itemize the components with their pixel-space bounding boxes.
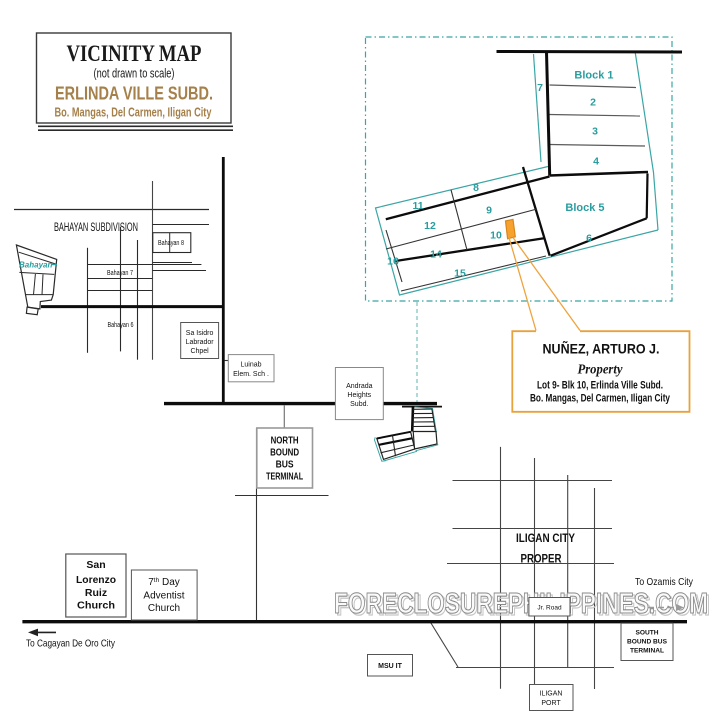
svg-text:Block 5: Block 5 bbox=[565, 202, 604, 214]
svg-text:Subd.: Subd. bbox=[350, 401, 368, 408]
svg-text:Chpel: Chpel bbox=[190, 348, 209, 355]
svg-text:Labrador: Labrador bbox=[186, 339, 215, 346]
svg-text:BAHAYAN SUBDIVISION: BAHAYAN SUBDIVISION bbox=[54, 222, 138, 234]
svg-text:Sa Isidro: Sa Isidro bbox=[186, 330, 214, 337]
svg-text:Bahayan 7: Bahayan 7 bbox=[107, 270, 133, 277]
svg-text:10: 10 bbox=[490, 230, 502, 242]
svg-text:Property: Property bbox=[578, 362, 624, 377]
svg-text:6: 6 bbox=[586, 233, 592, 245]
svg-text:Bahayan: Bahayan bbox=[19, 261, 52, 270]
svg-text:PROPER: PROPER bbox=[521, 554, 563, 566]
svg-text:Jr. Road: Jr. Road bbox=[537, 605, 562, 612]
svg-text:Block 1: Block 1 bbox=[574, 70, 613, 82]
svg-text:Bo. Mangas, Del Carmen, Iligan: Bo. Mangas, Del Carmen, Iligan City bbox=[55, 106, 212, 120]
svg-text:(not drawn to scale): (not drawn to scale) bbox=[94, 67, 175, 81]
svg-text:ERLINDA VILLE SUBD.: ERLINDA VILLE SUBD. bbox=[55, 84, 213, 104]
svg-text:11: 11 bbox=[412, 200, 423, 212]
svg-text:San: San bbox=[86, 559, 105, 571]
svg-text:To Cagayan De Oro City: To Cagayan De Oro City bbox=[26, 638, 116, 650]
svg-text:FORECLOSUREPHILIPPINES.COM: FORECLOSUREPHILIPPINES.COM bbox=[334, 588, 708, 620]
svg-text:7th Day: 7th Day bbox=[148, 577, 180, 588]
svg-text:2: 2 bbox=[590, 97, 596, 109]
svg-text:Lorenzo: Lorenzo bbox=[76, 574, 116, 586]
svg-text:PORT: PORT bbox=[541, 700, 561, 707]
svg-text:MSU IT: MSU IT bbox=[378, 663, 402, 670]
svg-text:16: 16 bbox=[387, 256, 399, 268]
svg-text:To Ozamis City: To Ozamis City bbox=[635, 576, 694, 588]
svg-text:Elem. Sch .: Elem. Sch . bbox=[233, 371, 269, 378]
svg-text:Adventist: Adventist bbox=[143, 591, 184, 602]
svg-text:Bahayan 8: Bahayan 8 bbox=[158, 240, 184, 247]
svg-text:BOUND: BOUND bbox=[270, 447, 299, 459]
svg-text:14: 14 bbox=[430, 249, 442, 261]
svg-text:Church: Church bbox=[77, 600, 115, 612]
svg-text:NUÑEZ, ARTURO J.: NUÑEZ, ARTURO J. bbox=[543, 340, 660, 357]
svg-text:Andrada: Andrada bbox=[346, 383, 373, 390]
svg-text:TERMINAL: TERMINAL bbox=[266, 471, 303, 483]
svg-text:Ruiz: Ruiz bbox=[85, 587, 107, 599]
svg-text:TERMINAL: TERMINAL bbox=[630, 648, 664, 655]
svg-text:SOUTH: SOUTH bbox=[635, 630, 658, 637]
svg-text:12: 12 bbox=[424, 220, 436, 232]
svg-text:9: 9 bbox=[486, 205, 492, 217]
svg-text:3: 3 bbox=[592, 126, 598, 138]
svg-text:Bahayan 6: Bahayan 6 bbox=[108, 322, 134, 329]
svg-text:ILIGAN: ILIGAN bbox=[540, 691, 563, 698]
svg-text:ILIGAN CITY: ILIGAN CITY bbox=[516, 533, 575, 545]
svg-text:BOUND BUS: BOUND BUS bbox=[627, 639, 668, 646]
svg-text:Heights: Heights bbox=[347, 392, 371, 399]
svg-text:BUS: BUS bbox=[276, 459, 294, 471]
svg-text:8: 8 bbox=[473, 182, 479, 194]
svg-text:Bo. Mangas, Del Carmen, Iligan: Bo. Mangas, Del Carmen, Iligan City bbox=[530, 393, 671, 405]
svg-text:NORTH: NORTH bbox=[271, 435, 299, 447]
svg-text:Lot 9- Blk 10, Erlinda Ville S: Lot 9- Blk 10, Erlinda Ville Subd. bbox=[537, 380, 663, 392]
svg-text:7: 7 bbox=[537, 82, 543, 94]
svg-text:Church: Church bbox=[148, 603, 180, 614]
svg-text:15: 15 bbox=[454, 268, 466, 280]
svg-text:VICINITY MAP: VICINITY MAP bbox=[67, 41, 202, 66]
svg-text:Luinab: Luinab bbox=[240, 362, 261, 369]
svg-text:4: 4 bbox=[593, 156, 599, 168]
